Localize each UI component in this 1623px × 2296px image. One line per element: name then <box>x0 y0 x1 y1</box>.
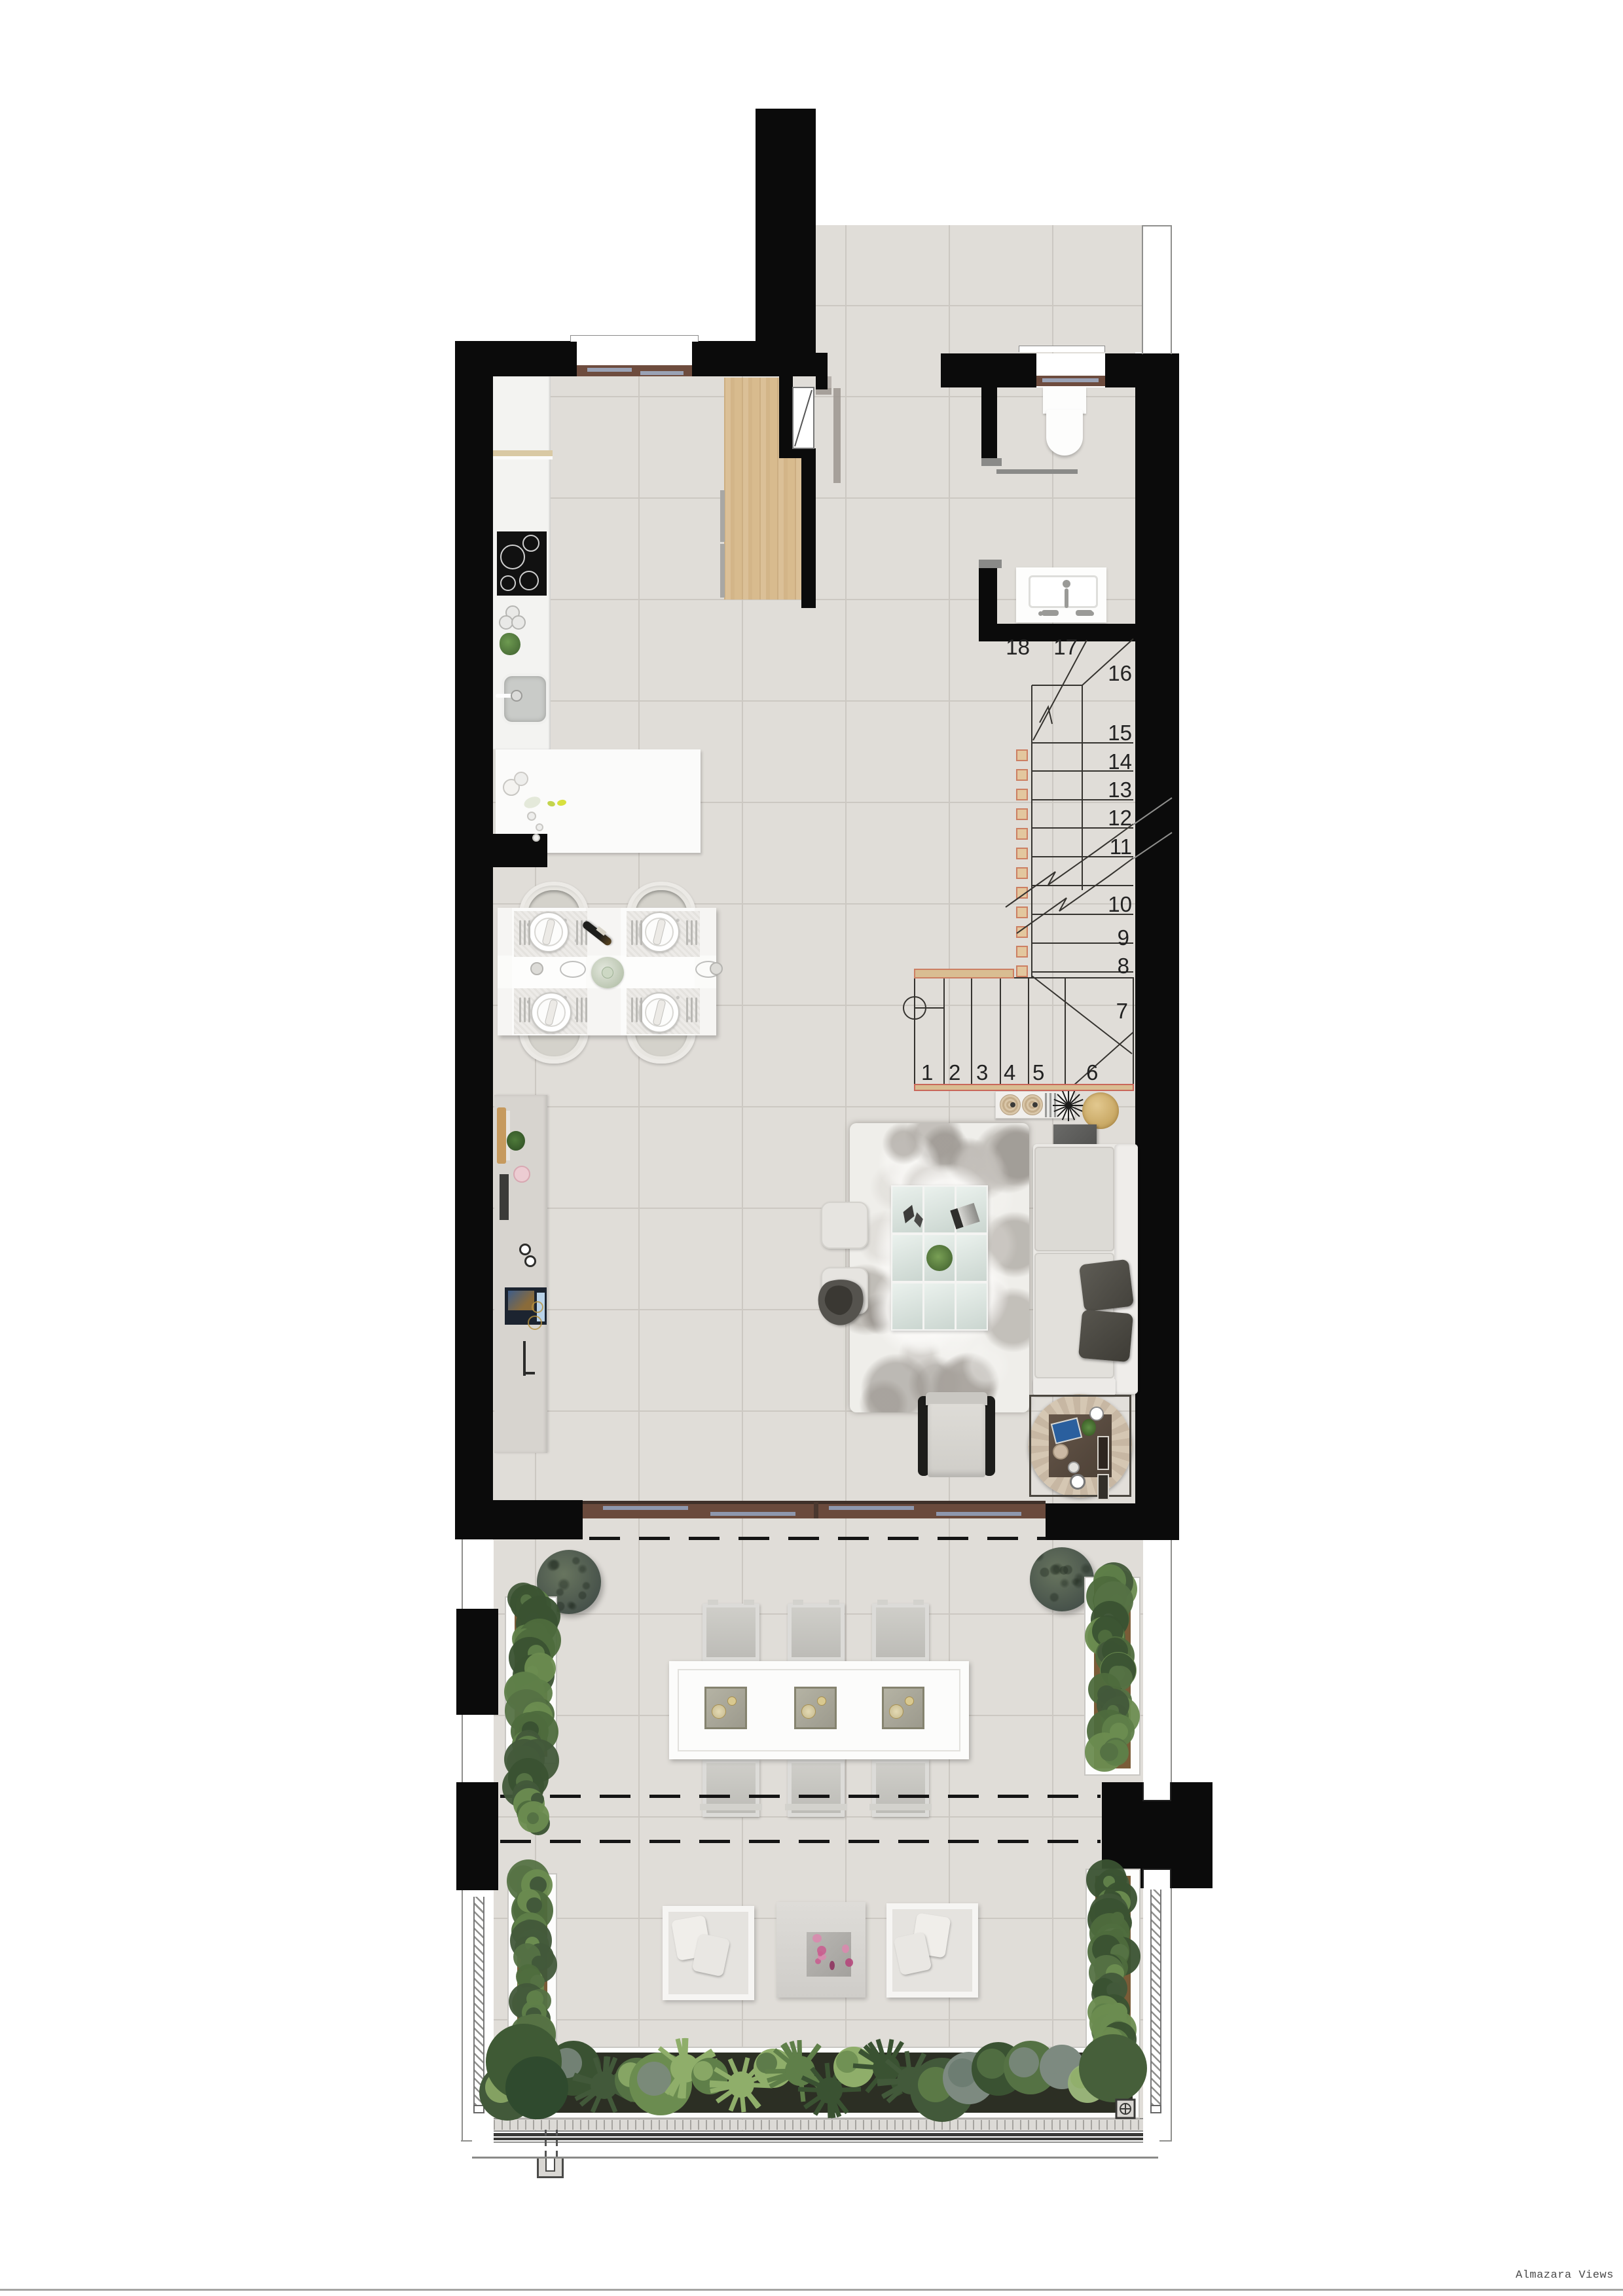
svg-text:6: 6 <box>1086 1060 1098 1085</box>
svg-text:11: 11 <box>1110 834 1132 859</box>
svg-text:2: 2 <box>949 1060 960 1085</box>
svg-text:7: 7 <box>1116 999 1128 1023</box>
svg-text:13: 13 <box>1108 778 1132 802</box>
svg-text:9: 9 <box>1118 925 1129 950</box>
svg-text:14: 14 <box>1108 749 1132 774</box>
svg-text:12: 12 <box>1108 806 1132 830</box>
svg-text:15: 15 <box>1108 721 1132 745</box>
svg-text:16: 16 <box>1108 661 1132 685</box>
svg-text:4: 4 <box>1004 1060 1015 1085</box>
svg-text:1: 1 <box>921 1060 933 1085</box>
svg-text:3: 3 <box>976 1060 988 1085</box>
svg-text:18: 18 <box>1006 635 1030 659</box>
svg-text:8: 8 <box>1118 954 1129 978</box>
svg-text:10: 10 <box>1108 892 1132 916</box>
svg-text:17: 17 <box>1053 635 1078 659</box>
svg-text:5: 5 <box>1032 1060 1044 1085</box>
